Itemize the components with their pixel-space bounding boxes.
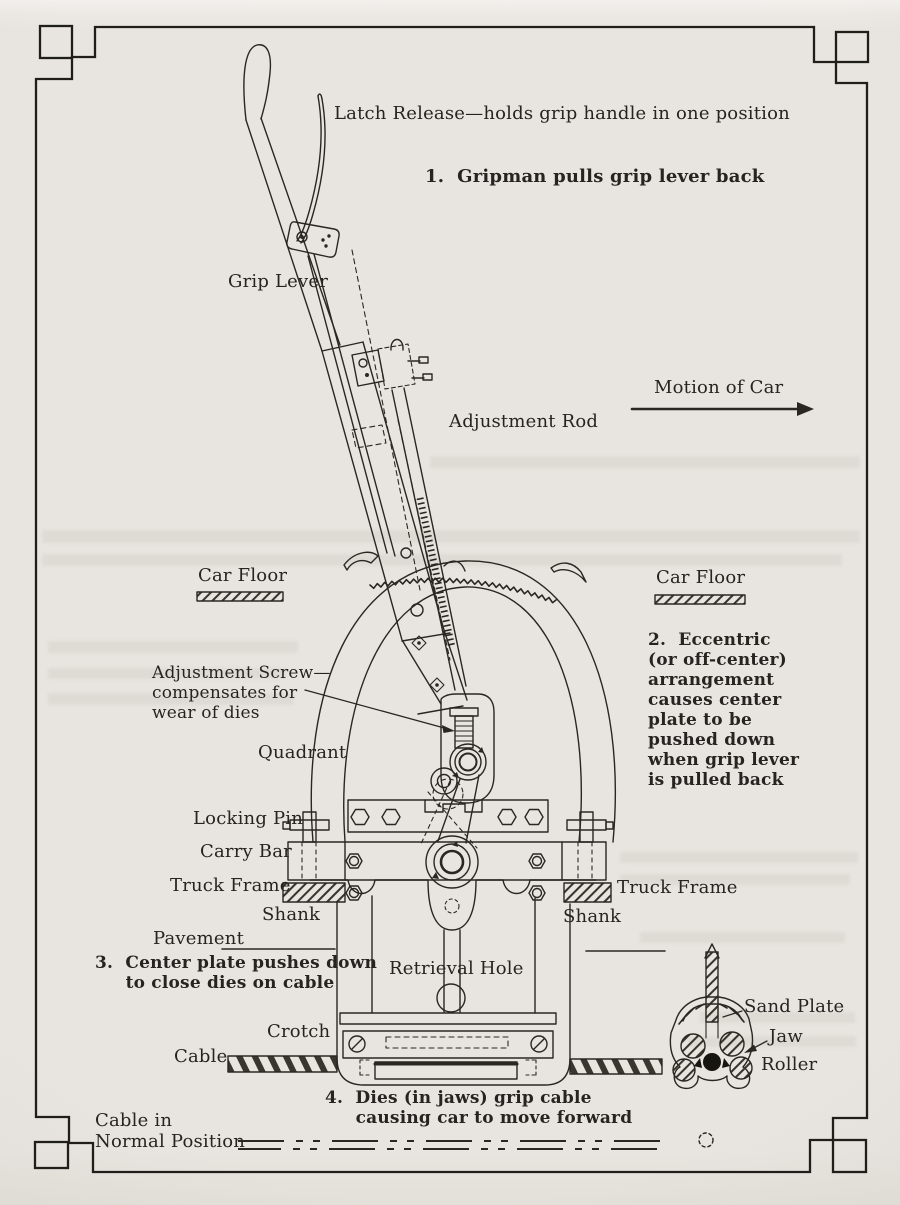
label-car-floor-left: Car Floor <box>198 565 287 586</box>
label-car-floor-right: Car Floor <box>656 567 745 588</box>
label-cable: Cable <box>174 1046 227 1067</box>
quadrant-pawls <box>344 552 586 582</box>
label-adjustment-screw: Adjustment Screw— compensates for wear o… <box>152 663 331 723</box>
label-step1: 1. Gripman pulls grip lever back <box>425 166 764 187</box>
center-plate-bar <box>348 800 548 832</box>
label-retrieval-hole: Retrieval Hole <box>389 958 524 979</box>
car-floor-bar-left <box>197 592 283 601</box>
label-step3: 3. Center plate pushes down to close die… <box>95 953 377 993</box>
car-floor-bar-right <box>655 595 745 604</box>
label-grip-lever: Grip Lever <box>228 271 328 292</box>
latch-rods <box>308 254 395 556</box>
label-quadrant: Quadrant <box>258 742 346 763</box>
grip-lever-handle <box>244 45 340 351</box>
book-page-photo: Latch Release—holds grip handle in one p… <box>0 0 900 1205</box>
retrieval-hole-circle <box>437 984 465 1012</box>
label-jaw: Jaw <box>769 1026 803 1047</box>
locking-pin-right <box>580 812 593 842</box>
cable-cross-section <box>703 1053 721 1071</box>
adjustment-rod-art <box>392 388 466 690</box>
label-adjustment-rod: Adjustment Rod <box>449 411 598 432</box>
label-shank-right: Shank <box>563 906 621 927</box>
motion-of-car-arrow <box>632 402 814 416</box>
label-step4: 4. Dies (in jaws) grip cable causing car… <box>325 1088 632 1128</box>
crotch-plate <box>343 1031 553 1058</box>
locking-pin-left <box>303 812 316 842</box>
label-truck-frame-right: Truck Frame <box>617 877 738 898</box>
label-step2: 2. Eccentric (or off-center) arrangement… <box>648 630 799 790</box>
label-latch-release: Latch Release—holds grip handle in one p… <box>334 103 790 124</box>
latch-release-lever <box>287 94 339 257</box>
corner-square-bottom-left <box>35 1142 68 1168</box>
corner-square-top-right <box>836 32 868 62</box>
label-roller: Roller <box>761 1054 817 1075</box>
label-sand-plate: Sand Plate <box>744 996 844 1017</box>
label-crotch: Crotch <box>267 1021 330 1042</box>
corner-square-bottom-right <box>833 1140 866 1172</box>
registration-mark <box>699 1133 713 1147</box>
label-shank-left: Shank <box>262 904 320 925</box>
label-carry-bar: Carry Bar <box>200 841 292 862</box>
corner-square-top-left <box>40 26 72 58</box>
truck-frame-block-left <box>283 883 345 902</box>
truck-frame-block-right <box>564 883 611 902</box>
label-cable-normal-position: Cable in Normal Position <box>95 1110 245 1152</box>
cable-normal-position-lines <box>238 1141 662 1149</box>
label-motion-of-car: Motion of Car <box>654 377 783 398</box>
jaw-cross-section <box>670 944 752 1088</box>
adjustment-screw-and-eccentric <box>431 694 494 809</box>
label-truck-frame-left: Truck Frame <box>170 875 291 896</box>
label-pavement: Pavement <box>153 928 244 949</box>
label-locking-pin: Locking Pin <box>193 808 303 829</box>
